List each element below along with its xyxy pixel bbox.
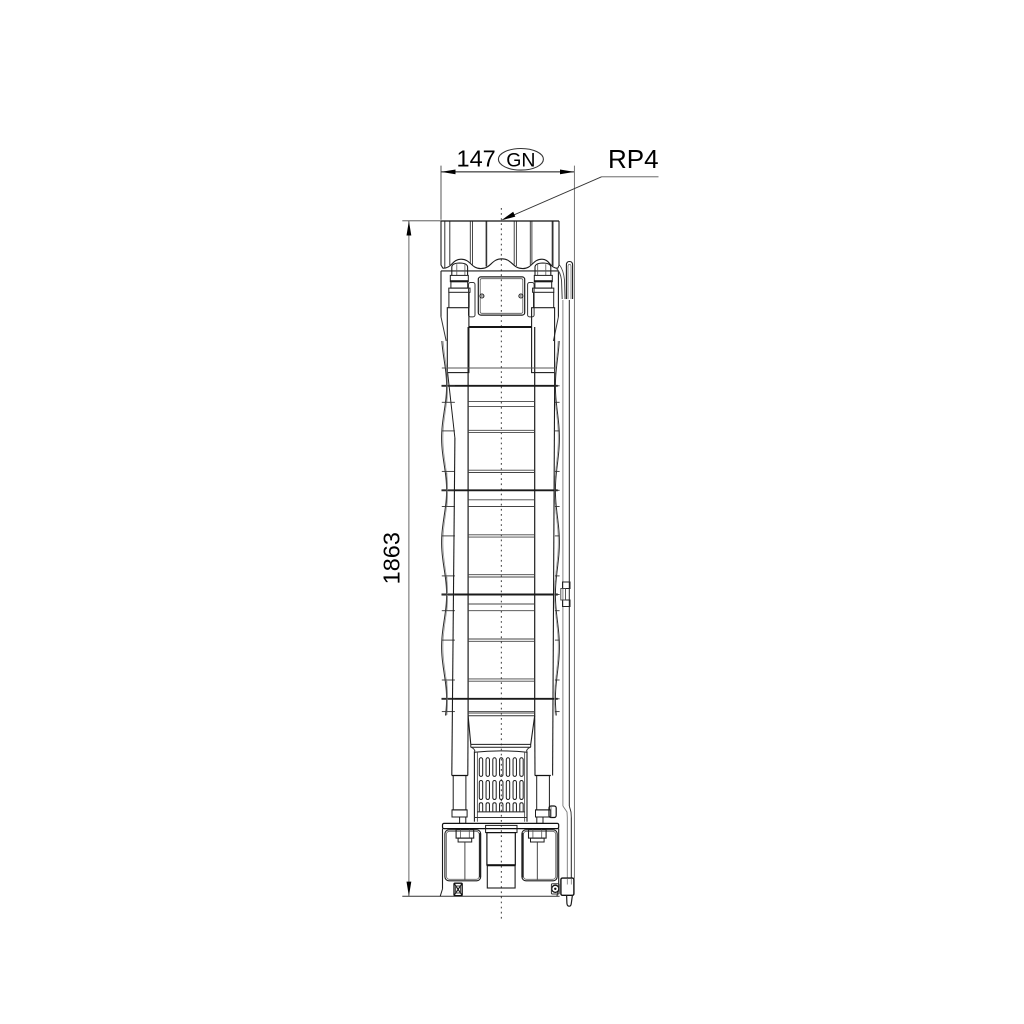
svg-text:RP4: RP4 — [608, 144, 659, 174]
svg-text:GN: GN — [506, 149, 535, 171]
svg-text:147: 147 — [457, 146, 496, 172]
svg-text:1863: 1863 — [378, 532, 404, 584]
